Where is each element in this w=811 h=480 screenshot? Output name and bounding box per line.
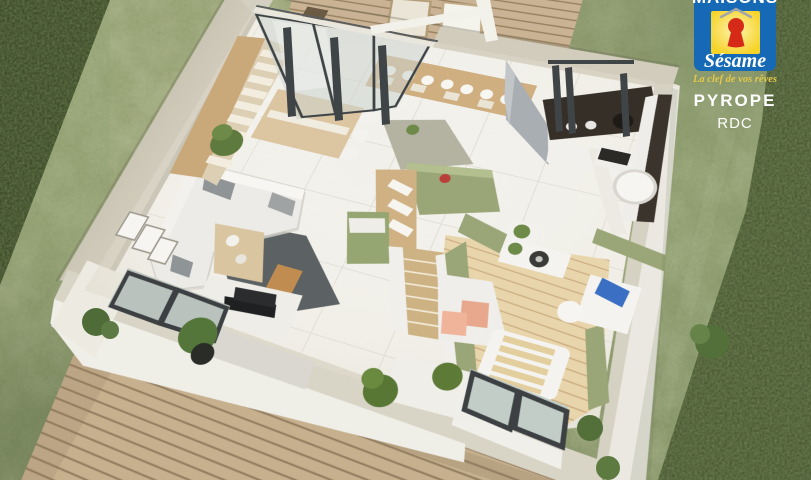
svg-text:Sésame: Sésame xyxy=(704,50,766,72)
svg-text:RDC: RDC xyxy=(717,115,753,132)
svg-text:PYROPE: PYROPE xyxy=(694,91,777,110)
svg-text:La clef de vos rêves: La clef de vos rêves xyxy=(692,74,777,85)
svg-text:MAISONS: MAISONS xyxy=(692,0,778,7)
